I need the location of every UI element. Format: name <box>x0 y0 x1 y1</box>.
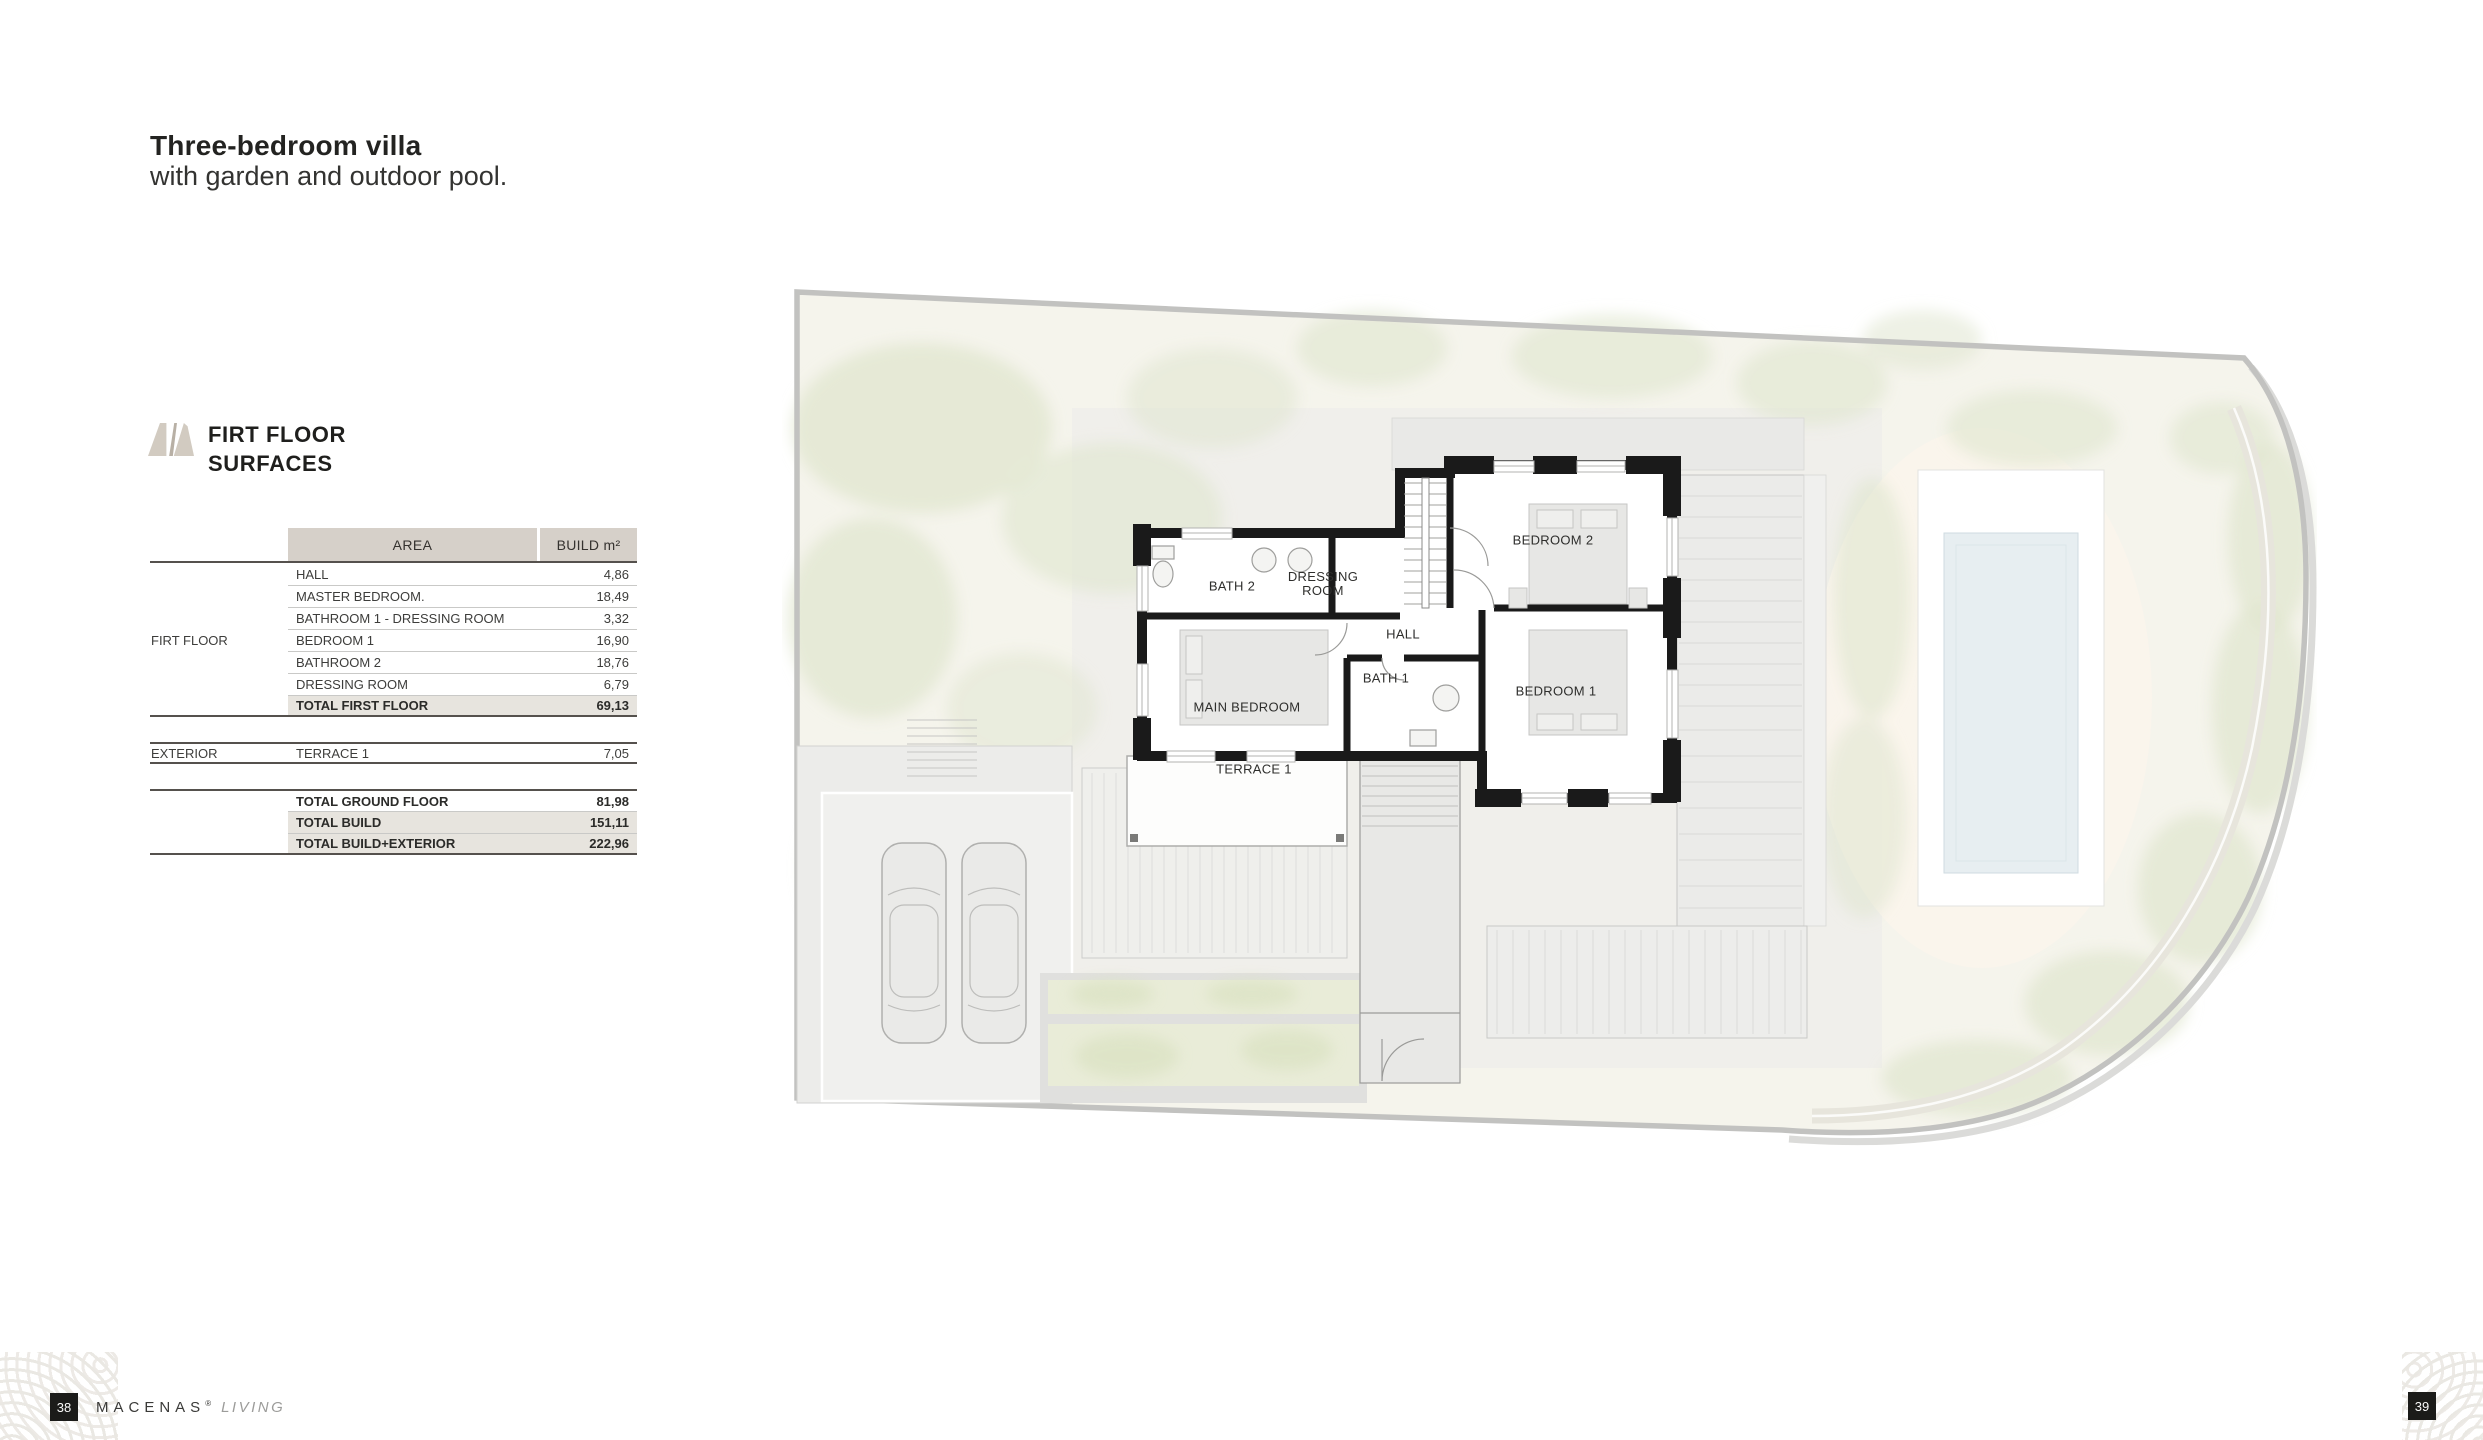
row-group-label <box>150 811 288 833</box>
swimming-pool <box>1918 470 2104 906</box>
row-area: TOTAL FIRST FLOOR <box>288 695 540 715</box>
page-number-left: 38 <box>50 1393 78 1421</box>
table-row: EXTERIORTERRACE 17,05 <box>150 742 637 764</box>
trademark-symbol: ® <box>205 1399 211 1408</box>
row-value: 222,96 <box>540 833 637 853</box>
row-value: 3,32 <box>540 607 637 629</box>
row-area: MASTER BEDROOM. <box>288 585 540 607</box>
page-number-right: 39 <box>2408 1392 2436 1420</box>
room-label-bath1: BATH 1 <box>1363 671 1409 686</box>
row-value: 151,11 <box>540 811 637 833</box>
row-value: 69,13 <box>540 695 637 715</box>
brand-suffix: LIVING <box>221 1399 285 1416</box>
section-title-line2: SURFACES <box>208 449 346 478</box>
room-label-dressing-room: DRESSING ROOM <box>1278 570 1368 598</box>
room-label-main-bedroom: MAIN BEDROOM <box>1194 700 1301 715</box>
room-label-bath2: BATH 2 <box>1209 579 1255 594</box>
row-area: TOTAL GROUND FLOOR <box>288 791 540 811</box>
row-group-label <box>150 585 288 607</box>
row-value: 18,76 <box>540 651 637 673</box>
site-plan-drawing <box>782 278 2317 1158</box>
table-row: DRESSING ROOM6,79 <box>150 673 637 695</box>
row-area: BEDROOM 1 <box>288 629 540 651</box>
row-group-label <box>150 651 288 673</box>
site-plan: BATH 2 DRESSING ROOM HALL BATH 1 MAIN BE… <box>782 278 2317 1158</box>
entry-corridor <box>1360 756 1460 1083</box>
row-area: BATHROOM 1 - DRESSING ROOM <box>288 607 540 629</box>
room-label-bedroom1: BEDROOM 1 <box>1516 684 1597 699</box>
row-group-label <box>150 673 288 695</box>
section-title: FIRT FLOOR SURFACES <box>208 420 346 478</box>
row-area: BATHROOM 2 <box>288 651 540 673</box>
table-row: BATHROOM 1 - DRESSING ROOM3,32 <box>150 607 637 629</box>
table-header: AREA BUILD m² <box>150 528 637 563</box>
section-heading: FIRT FLOOR SURFACES <box>148 420 346 478</box>
title: Three-bedroom villa <box>150 130 507 161</box>
table-spacer <box>150 717 637 742</box>
table-row: TOTAL GROUND FLOOR81,98 <box>150 789 637 811</box>
row-group-label <box>150 607 288 629</box>
table-row: FIRT FLOORBEDROOM 116,90 <box>150 629 637 651</box>
header-area-cell: AREA <box>288 528 540 561</box>
table-row: TOTAL FIRST FLOOR69,13 <box>150 695 637 717</box>
row-group-label <box>150 833 288 853</box>
row-area: DRESSING ROOM <box>288 673 540 695</box>
row-value: 6,79 <box>540 673 637 695</box>
row-group-label: FIRT FLOOR <box>150 629 288 651</box>
row-value: 16,90 <box>540 629 637 651</box>
row-group-label <box>150 791 288 811</box>
row-group-label <box>150 695 288 715</box>
row-value: 18,49 <box>540 585 637 607</box>
room-label-terrace1: TERRACE 1 <box>1216 762 1292 777</box>
brand-name: MACENAS <box>96 1399 205 1416</box>
table-row: BATHROOM 218,76 <box>150 651 637 673</box>
table-row: TOTAL BUILD151,11 <box>150 811 637 833</box>
header-group-cell <box>150 528 288 561</box>
row-area: TOTAL BUILD <box>288 811 540 833</box>
surfaces-rows: HALL4,86MASTER BEDROOM.18,49BATHROOM 1 -… <box>150 563 637 855</box>
page-title: Three-bedroom villa with garden and outd… <box>150 130 507 192</box>
header-build-cell: BUILD m² <box>540 528 637 561</box>
brand-logotype: MACENAS® LIVING <box>96 1399 285 1416</box>
subtitle: with garden and outdoor pool. <box>150 161 507 192</box>
rear-decking <box>1487 926 1807 1038</box>
row-group-label <box>150 563 288 585</box>
brand-mark-icon <box>148 423 194 456</box>
surfaces-table: AREA BUILD m² HALL4,86MASTER BEDROOM.18,… <box>150 528 637 855</box>
row-area: HALL <box>288 563 540 585</box>
table-row: TOTAL BUILD+EXTERIOR222,96 <box>150 833 637 855</box>
planting-beds <box>1040 973 1367 1103</box>
table-row: MASTER BEDROOM.18,49 <box>150 585 637 607</box>
table-row: HALL4,86 <box>150 563 637 585</box>
table-spacer <box>150 764 637 789</box>
row-value: 7,05 <box>540 744 637 762</box>
room-label-hall: HALL <box>1386 627 1420 642</box>
row-area: TERRACE 1 <box>288 744 540 762</box>
section-title-line1: FIRT FLOOR <box>208 420 346 449</box>
room-label-bedroom2: BEDROOM 2 <box>1513 533 1594 548</box>
row-group-label: EXTERIOR <box>150 744 288 762</box>
brochure-page: Three-bedroom villa with garden and outd… <box>0 0 2483 1440</box>
row-value: 4,86 <box>540 563 637 585</box>
row-value: 81,98 <box>540 791 637 811</box>
row-area: TOTAL BUILD+EXTERIOR <box>288 833 540 853</box>
